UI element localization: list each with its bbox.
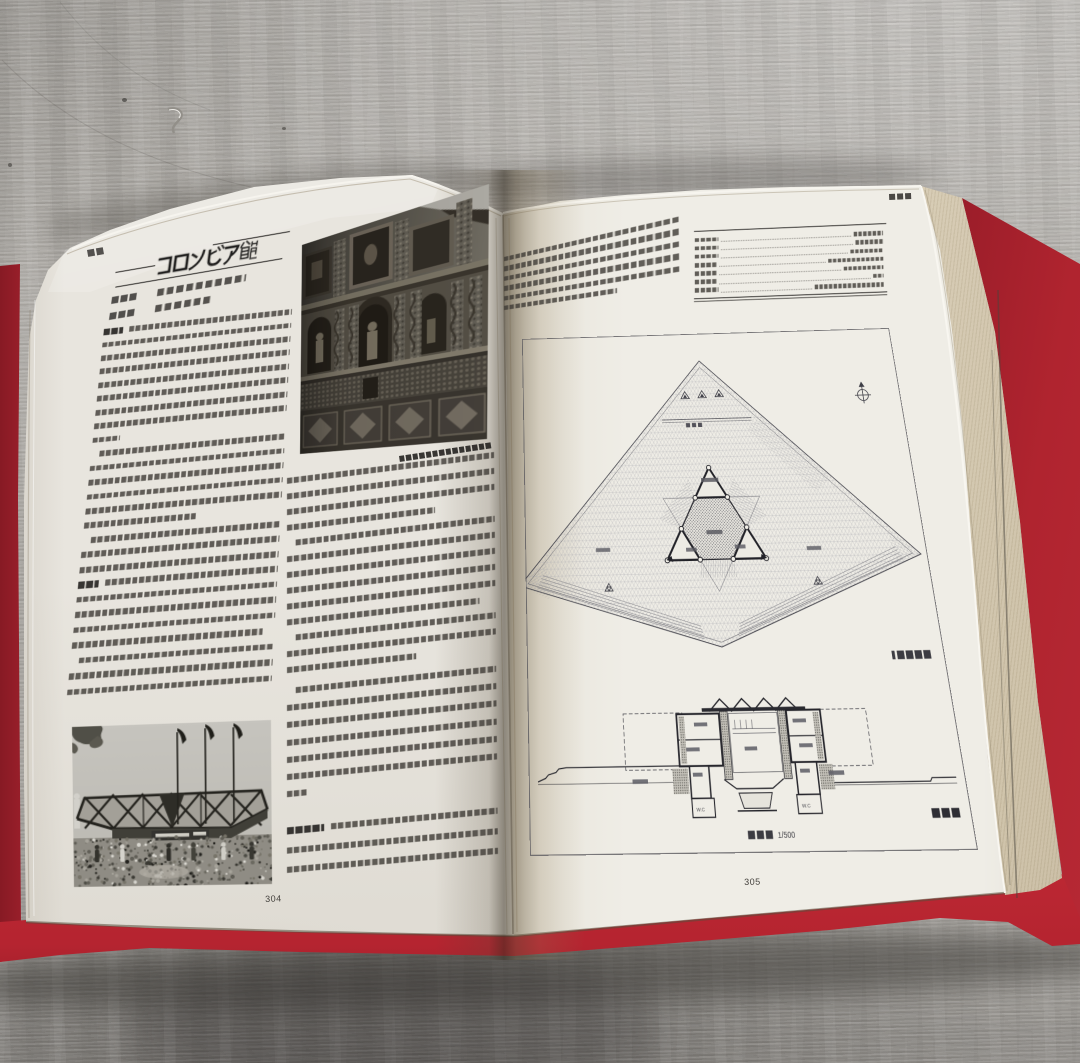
svg-text:W.C: W.C	[802, 803, 812, 809]
svg-text:W.C: W.C	[696, 807, 706, 813]
svg-text:1/500: 1/500	[777, 832, 795, 842]
